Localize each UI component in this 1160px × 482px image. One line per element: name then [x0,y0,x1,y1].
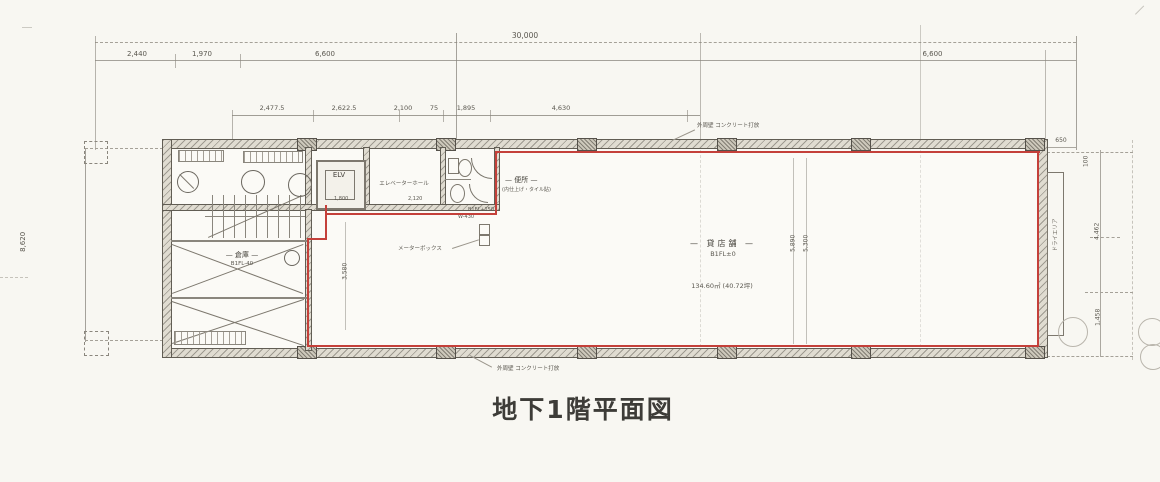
meter-box-label: メーターボックス [398,246,442,252]
ext-tick [443,110,444,122]
pump-symbol [288,173,312,197]
ext-line [456,33,457,140]
equipment-strip [174,331,246,345]
lease-boundary-bottom [307,345,1039,347]
lease-boundary-left-low [307,238,309,347]
dim-sub-seg2: 2,622.5 [320,105,368,112]
column [852,139,870,150]
symbol-circle [284,250,300,266]
sheet-edge-line [1132,140,1133,360]
column [1026,347,1044,358]
toilet-note: (内仕上げ・タイル貼) [502,188,551,194]
main-room-level: B1FL±0 [658,251,788,258]
ext-line [1047,356,1133,357]
meter-box [479,235,490,246]
outer-wall-bottom [163,349,1047,357]
ext-tick [240,54,241,68]
dim-line-sub-row [232,115,700,116]
storage-label: — 倉庫 — [215,252,269,260]
column [578,347,596,358]
column [437,347,455,358]
dim-line-650 [1047,147,1076,148]
dim-inner-w430: W-430 [458,215,474,221]
dim-mid-5890: 5,890 [791,226,798,260]
pump-symbol [241,170,265,194]
lease-boundary-right [1037,151,1039,347]
dim-right-650: 650 [1044,138,1078,145]
grid-marker [84,141,108,164]
dim-mid-3580: 3,580 [343,254,350,288]
punch-hole [1140,344,1160,370]
equipment-strip [243,151,303,163]
ext-line [920,25,921,140]
storage-level: B1FL-40 [218,261,266,267]
dim-right-4462: 4,462 [1095,213,1102,249]
dim-right-100: 100 [1084,150,1091,172]
ext-tick [687,110,688,122]
interior-wall [441,148,445,208]
dry-area-label: ドライエリア [1053,215,1059,255]
dim-line-overall [95,42,1076,43]
toilet-label: — 便所 — [505,177,537,185]
toilet-bowl [458,159,472,177]
ext-tick [313,110,314,122]
punch-hole [1058,317,1088,347]
outer-wall-top [163,140,1047,148]
column [578,139,596,150]
dim-overall: 30,000 [495,32,555,40]
column [718,139,736,150]
dim-sub-seg4: 75 [426,105,442,112]
wash-basin [450,184,465,203]
ext-tick [1085,292,1133,293]
punch-hole [1138,318,1160,346]
lease-boundary-left-mid [325,205,327,240]
interior-wall-line [171,240,307,242]
dim-right-1458: 1,458 [1096,300,1103,334]
dim-top-seg2: 1,970 [177,51,227,59]
dim-inner-1800: 1,800 [334,197,348,203]
dim-inner-2120: 2,120 [408,197,422,203]
scan-artifact [0,277,28,278]
ext-tick [175,54,176,68]
column [437,139,455,150]
elevator-hall-label: エレベーターホール [366,181,442,187]
scan-artifact [1135,6,1144,15]
grid-line [920,150,921,347]
column [1026,139,1044,150]
column [718,347,736,358]
dim-mid-5300: 5,300 [804,226,811,260]
dim-top-seg4: 6,600 [905,51,960,59]
meter-box [479,224,490,235]
dim-sub-seg5: 1,895 [448,105,484,112]
grid-marker [84,331,109,356]
dim-line-left [85,148,86,342]
dim-sub-seg6: 4,630 [538,105,584,112]
lease-boundary-jog [307,238,327,240]
main-room-area: 134.60㎡ (40.72坪) [652,283,792,290]
dim-top-seg3: 6,600 [300,51,350,59]
wall-note-bottom: 外周壁 コンクリート打放 [497,366,559,372]
toilet-partition [445,179,471,180]
lease-boundary-top [495,151,1040,153]
main-room-label: — 貸店舗 — [658,240,788,249]
floor-plan-sheet: 30,000 2,440 1,970 6,600 6,600 2,477.5 2… [0,0,1160,482]
ext-tick [232,110,233,140]
ext-tick [490,110,491,122]
lease-boundary-left-top [495,151,497,215]
dim-line-top-row [95,60,1076,61]
ext-line [1045,50,1046,140]
wall-note-top: 外周壁 コンクリート打放 [697,123,759,129]
ext-line [1076,36,1077,150]
outer-wall-left [163,140,171,357]
dim-top-seg1: 2,440 [112,51,162,59]
drawing-title: 地下1階平面図 [473,396,693,424]
ext-line [95,36,96,150]
outer-wall-right [1039,140,1047,357]
interior-wall-line [171,297,307,299]
dim-left-height: 8,620 [20,220,28,264]
lease-boundary-mid-horizontal [325,213,497,215]
dim-sub-seg1: 2,477.5 [248,105,296,112]
scan-artifact [22,27,32,28]
ext-tick [399,110,400,122]
elevator-label: ELV [316,172,362,180]
column [852,347,870,358]
equipment-strip [178,150,224,162]
dim-sub-seg3: 2,100 [385,105,421,112]
